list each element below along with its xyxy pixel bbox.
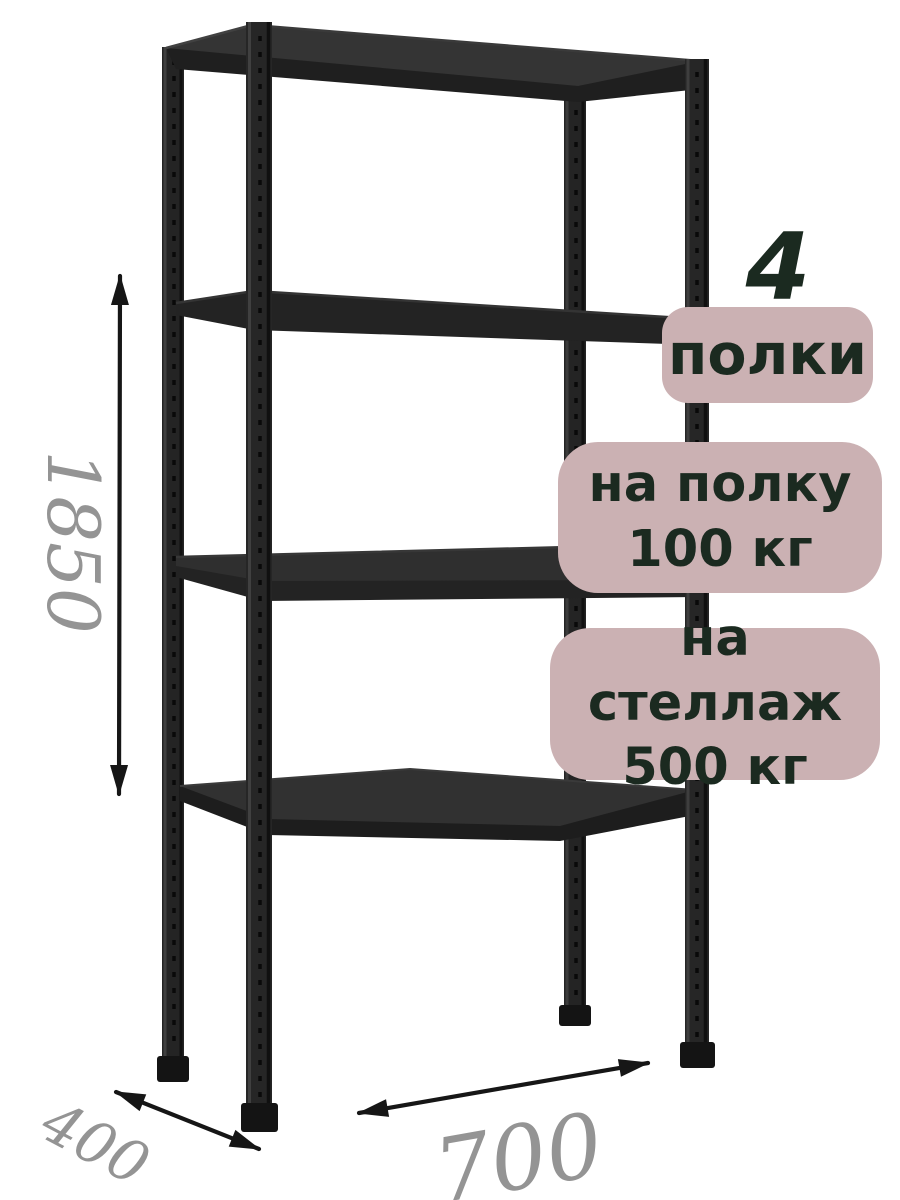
per-rack-load-line2: 500 кг: [622, 736, 807, 801]
per-shelf-load-badge: на полку 100 кг: [558, 442, 882, 593]
per-rack-load-badge: на стеллаж 500 кг: [550, 628, 880, 780]
rack-post-front-left: [246, 22, 272, 1105]
rack-post-back-left: [162, 47, 184, 1058]
per-rack-load-line1: на стеллаж: [550, 607, 880, 737]
rack-feet: [157, 1005, 715, 1132]
per-shelf-load-line2: 100 кг: [627, 518, 812, 583]
shelf-count-badge: полки: [662, 307, 873, 403]
width-dimension-label: 700: [427, 1093, 610, 1200]
rack-render: 1850 400 700: [0, 0, 900, 1200]
height-dimension-arrow: [119, 276, 120, 794]
shelf-count-label: полки: [668, 322, 867, 388]
shelf-count-number: 4: [733, 221, 823, 313]
width-dimension-arrow: [359, 1063, 648, 1113]
per-shelf-load-line1: на полку: [589, 453, 852, 518]
product-image: 1850 400 700 4 полки на полку 100 кг на …: [0, 0, 900, 1200]
height-dimension-label: 1850: [31, 450, 115, 633]
